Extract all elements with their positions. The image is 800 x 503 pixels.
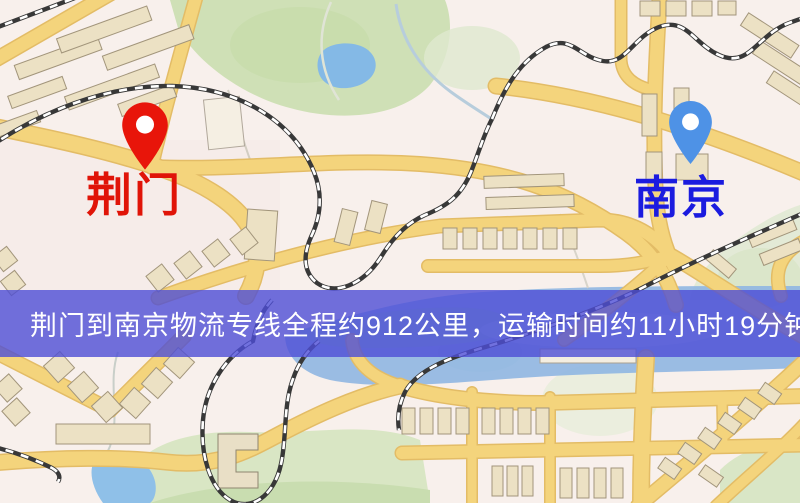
- origin-city-label: 荆门: [86, 172, 182, 218]
- origin-pin-hole: [136, 116, 154, 134]
- blue-map-pin-icon: [668, 99, 713, 166]
- map-background: [0, 0, 800, 503]
- destination-city-label: 南京: [634, 175, 728, 220]
- red-map-pin-icon: [121, 101, 169, 171]
- map-canvas: 荆门 南京 荆门到南京物流专线全程约912公里，运输时间约11小时19分钟.: [0, 0, 800, 503]
- destination-pin-shape: [669, 101, 712, 164]
- destination-pin-hole: [682, 113, 699, 130]
- origin-pin-shape: [122, 102, 168, 169]
- route-info-text: 荆门到南京物流专线全程约912公里，运输时间约11小时19分钟.: [0, 304, 800, 343]
- route-info-banner: 荆门到南京物流专线全程约912公里，运输时间约11小时19分钟.: [0, 290, 800, 357]
